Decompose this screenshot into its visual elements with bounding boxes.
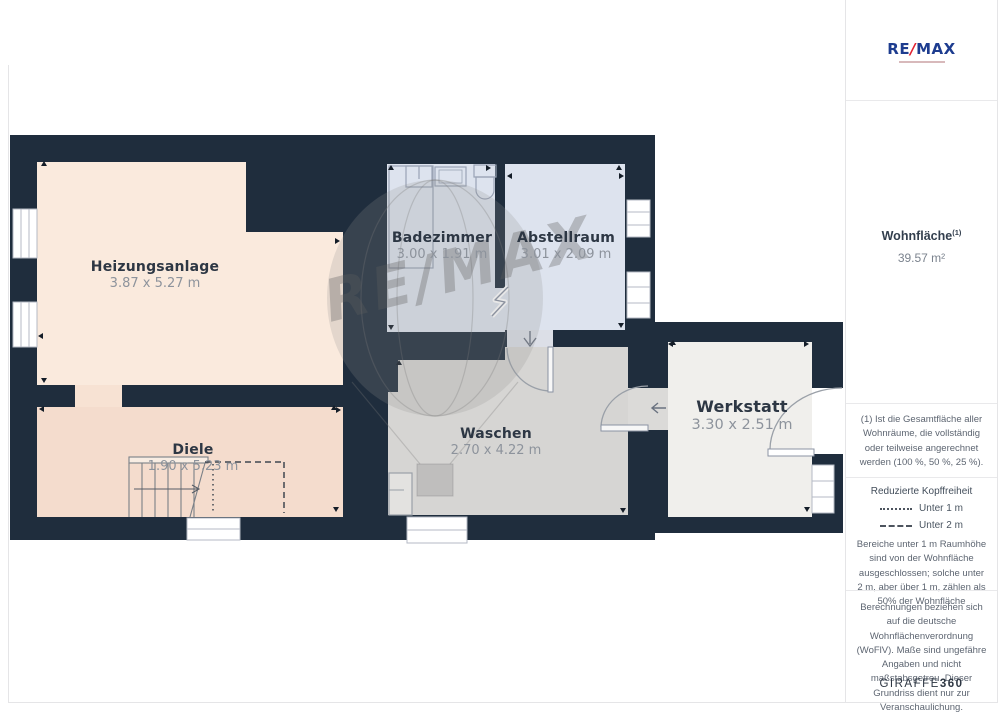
footnote-text: (1) Ist die Gesamtfläche aller Wohnräume… [856,413,987,470]
exterior-door-opening [812,388,843,454]
legend-label: Unter 1 m [919,503,963,514]
opening-heizung-diele [75,385,122,407]
floorplan-page: RE/MAX Heizungsanlage 3.87 x 5.27 m Bade… [0,0,1000,707]
remax-wordmark: RE/MAX [846,40,997,58]
label-waschen: Waschen 2.70 x 4.22 m [451,426,542,458]
legend-under-2m: Unter 2 m [846,520,997,531]
room-name: Werkstatt [691,397,792,416]
window-annex [812,465,834,513]
room-dims: 3.00 x 1.91 m [392,247,492,262]
window-left-1 [13,209,37,258]
dashed-line-sample [880,525,912,527]
room-name: Badezimmer [392,230,492,246]
room-name: Diele [148,442,239,458]
label-heizungsanlage: Heizungsanlage 3.87 x 5.27 m [91,259,219,291]
door-leaf-abstell [548,347,553,392]
divider [846,477,997,478]
legend-label: Unter 2 m [919,520,963,531]
window-left-2 [13,302,37,347]
dotted-line-sample [880,508,912,510]
room-name: Heizungsanlage [91,259,219,275]
label-badezimmer: Badezimmer 3.00 x 1.91 m [392,230,492,262]
legend-under-1m: Unter 1 m [846,503,997,514]
brand-giraffe: GIRAFFE [879,678,939,690]
room-name: Abstellraum [517,230,615,246]
logo-re: RE [887,40,910,58]
headroom-note: Bereiche unter 1 m Raumhöhe sind von der… [856,538,987,609]
disclaimer-text: Berechnungen beziehen sich auf die deuts… [856,601,987,715]
divider [846,100,997,101]
remax-logo: RE/MAX [846,40,997,63]
giraffe360-brand: GIRAFFE360 [846,678,997,690]
label-abstellraum: Abstellraum 3.01 x 2.09 m [517,230,615,262]
room-dims: 2.70 x 4.22 m [451,443,542,458]
divider [846,590,997,591]
divider [846,403,997,404]
room-dims: 3.01 x 2.09 m [517,247,615,262]
logo-max: MAX [916,40,956,58]
washing-machine [389,473,412,515]
living-area-block: Wohnfläche(1) 39.57 m² [846,228,997,265]
label-werkstatt: Werkstatt 3.30 x 2.51 m [691,397,792,433]
room-dims: 3.87 x 5.27 m [91,276,219,291]
window-bottom-1 [187,518,240,540]
living-area-label: Wohnfläche(1) [846,228,997,243]
passage-waschen-werkstatt [628,388,668,430]
room-dims: 3.30 x 2.51 m [691,417,792,433]
logo-tagline [899,61,945,63]
label-diele: Diele 1.90 x 5.23 m [148,442,239,474]
room-name: Waschen [451,426,542,442]
window-right-2 [627,272,650,318]
living-area-value: 39.57 m² [846,251,997,265]
info-sidebar: RE/MAX Wohnfläche(1) 39.57 m² (1) Ist di… [845,0,998,703]
headroom-title: Reduzierte Kopffreiheit [846,486,997,497]
window-bottom-2 [407,517,467,543]
area-label-text: Wohnfläche [882,229,953,243]
area-label-sup: (1) [952,228,961,237]
window-right-1 [627,200,650,237]
door-leaf-werkstatt [768,449,814,456]
room-dims: 1.90 x 5.23 m [148,459,239,474]
door-leaf-passage [601,425,648,431]
brand-360: 360 [940,678,964,690]
